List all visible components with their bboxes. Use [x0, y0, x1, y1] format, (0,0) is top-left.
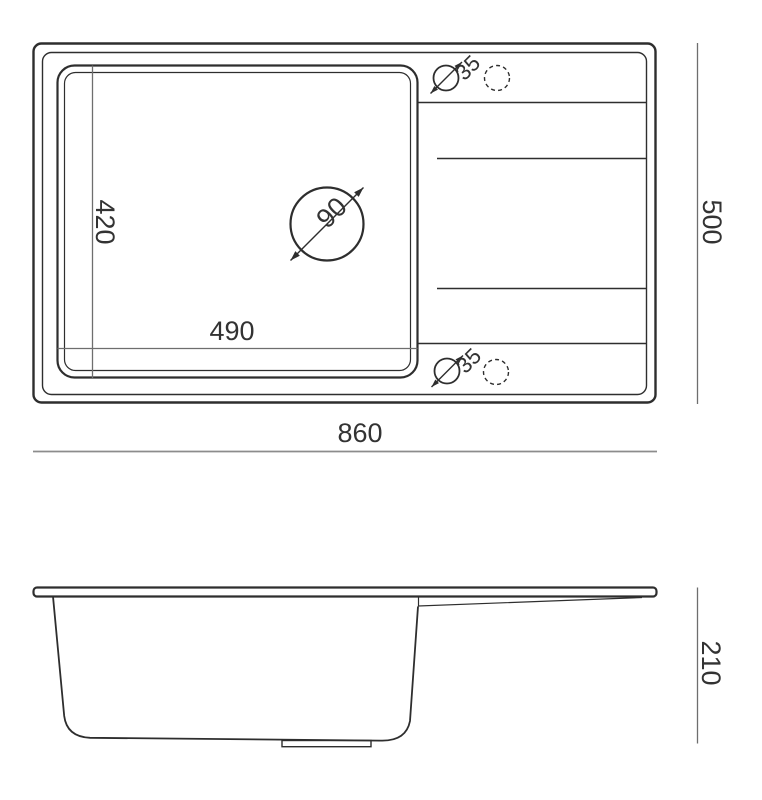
dim-bowl-depth-label: 420 [90, 199, 120, 244]
drain-diameter-label: 90 [310, 191, 352, 233]
tap-hole-bottom-alt-position-circle [484, 360, 509, 385]
dim-overall-height: 210 [696, 588, 726, 744]
rim-profile [34, 588, 657, 597]
tap-hole-top: 35 [429, 50, 510, 95]
dim-bowl-width: 490 [58, 316, 418, 349]
tap-hole-top-label: 35 [450, 50, 485, 85]
dim-overall-width-label: 860 [337, 418, 382, 448]
tap-hole-bottom-label: 35 [451, 343, 486, 378]
sink-dimension-drawing: 90 35 35 420 490 [0, 0, 762, 800]
tap-hole-bottom: 35 [430, 343, 509, 389]
dim-bowl-depth: 420 [90, 66, 120, 379]
drawing-canvas: 90 35 35 420 490 [0, 0, 762, 800]
dim-overall-depth-label: 500 [697, 199, 727, 244]
drainboard-slope-line [419, 597, 643, 607]
bowl-profile [53, 597, 418, 741]
dim-overall-height-label: 210 [696, 640, 726, 685]
dim-overall-depth: 500 [697, 43, 727, 404]
top-view: 90 35 35 420 490 [33, 43, 727, 452]
dim-bowl-width-label: 490 [209, 316, 254, 346]
drain-fitting [282, 741, 371, 747]
tap-hole-top-alt-position-circle [485, 66, 510, 91]
drain-hole: 90 [288, 185, 366, 263]
drainboard-grooves [417, 103, 647, 344]
dim-overall-width: 860 [33, 418, 657, 452]
side-view: 210 [34, 588, 727, 747]
